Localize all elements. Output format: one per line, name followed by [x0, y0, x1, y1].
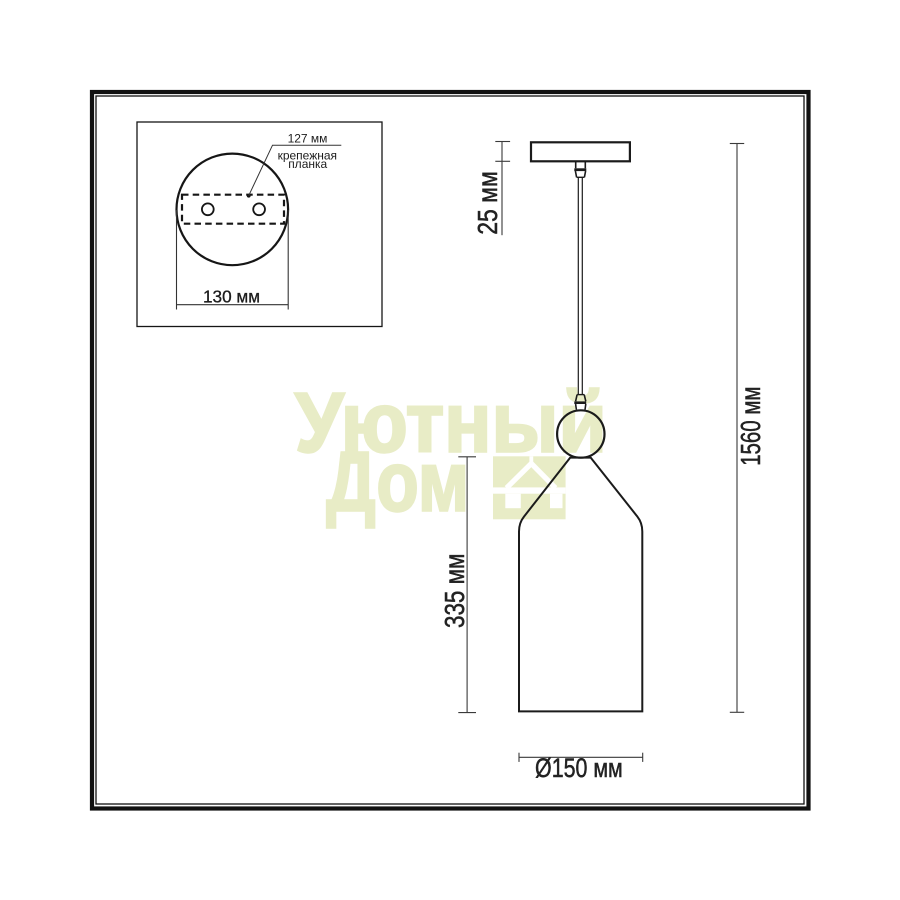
svg-text:1560 мм: 1560 мм [736, 387, 767, 466]
svg-text:25 мм: 25 мм [473, 171, 503, 235]
svg-text:127 мм: 127 мм [288, 132, 328, 146]
svg-text:планка: планка [288, 157, 327, 171]
svg-text:335 мм: 335 мм [440, 554, 471, 628]
svg-text:Дом: Дом [326, 435, 469, 529]
svg-text:Ø150 мм: Ø150 мм [535, 754, 623, 784]
svg-text:130 мм: 130 мм [203, 286, 260, 306]
